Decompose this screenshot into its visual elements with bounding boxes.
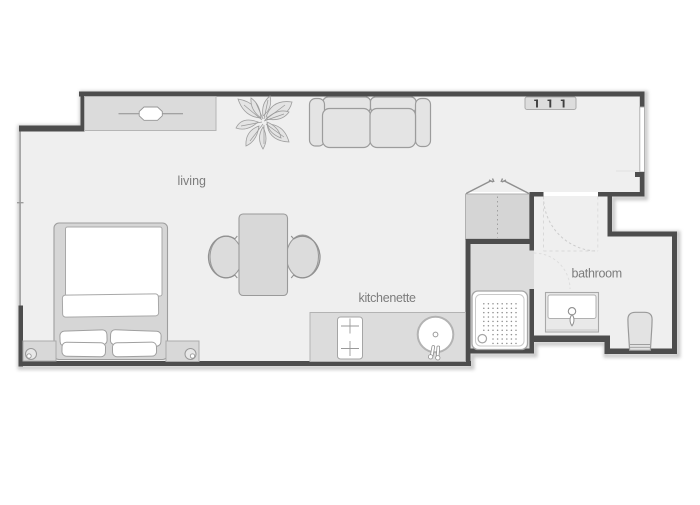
- svg-text:living: living: [178, 174, 207, 188]
- svg-text:kitchenette: kitchenette: [359, 291, 417, 305]
- svg-text:bathroom: bathroom: [572, 267, 622, 281]
